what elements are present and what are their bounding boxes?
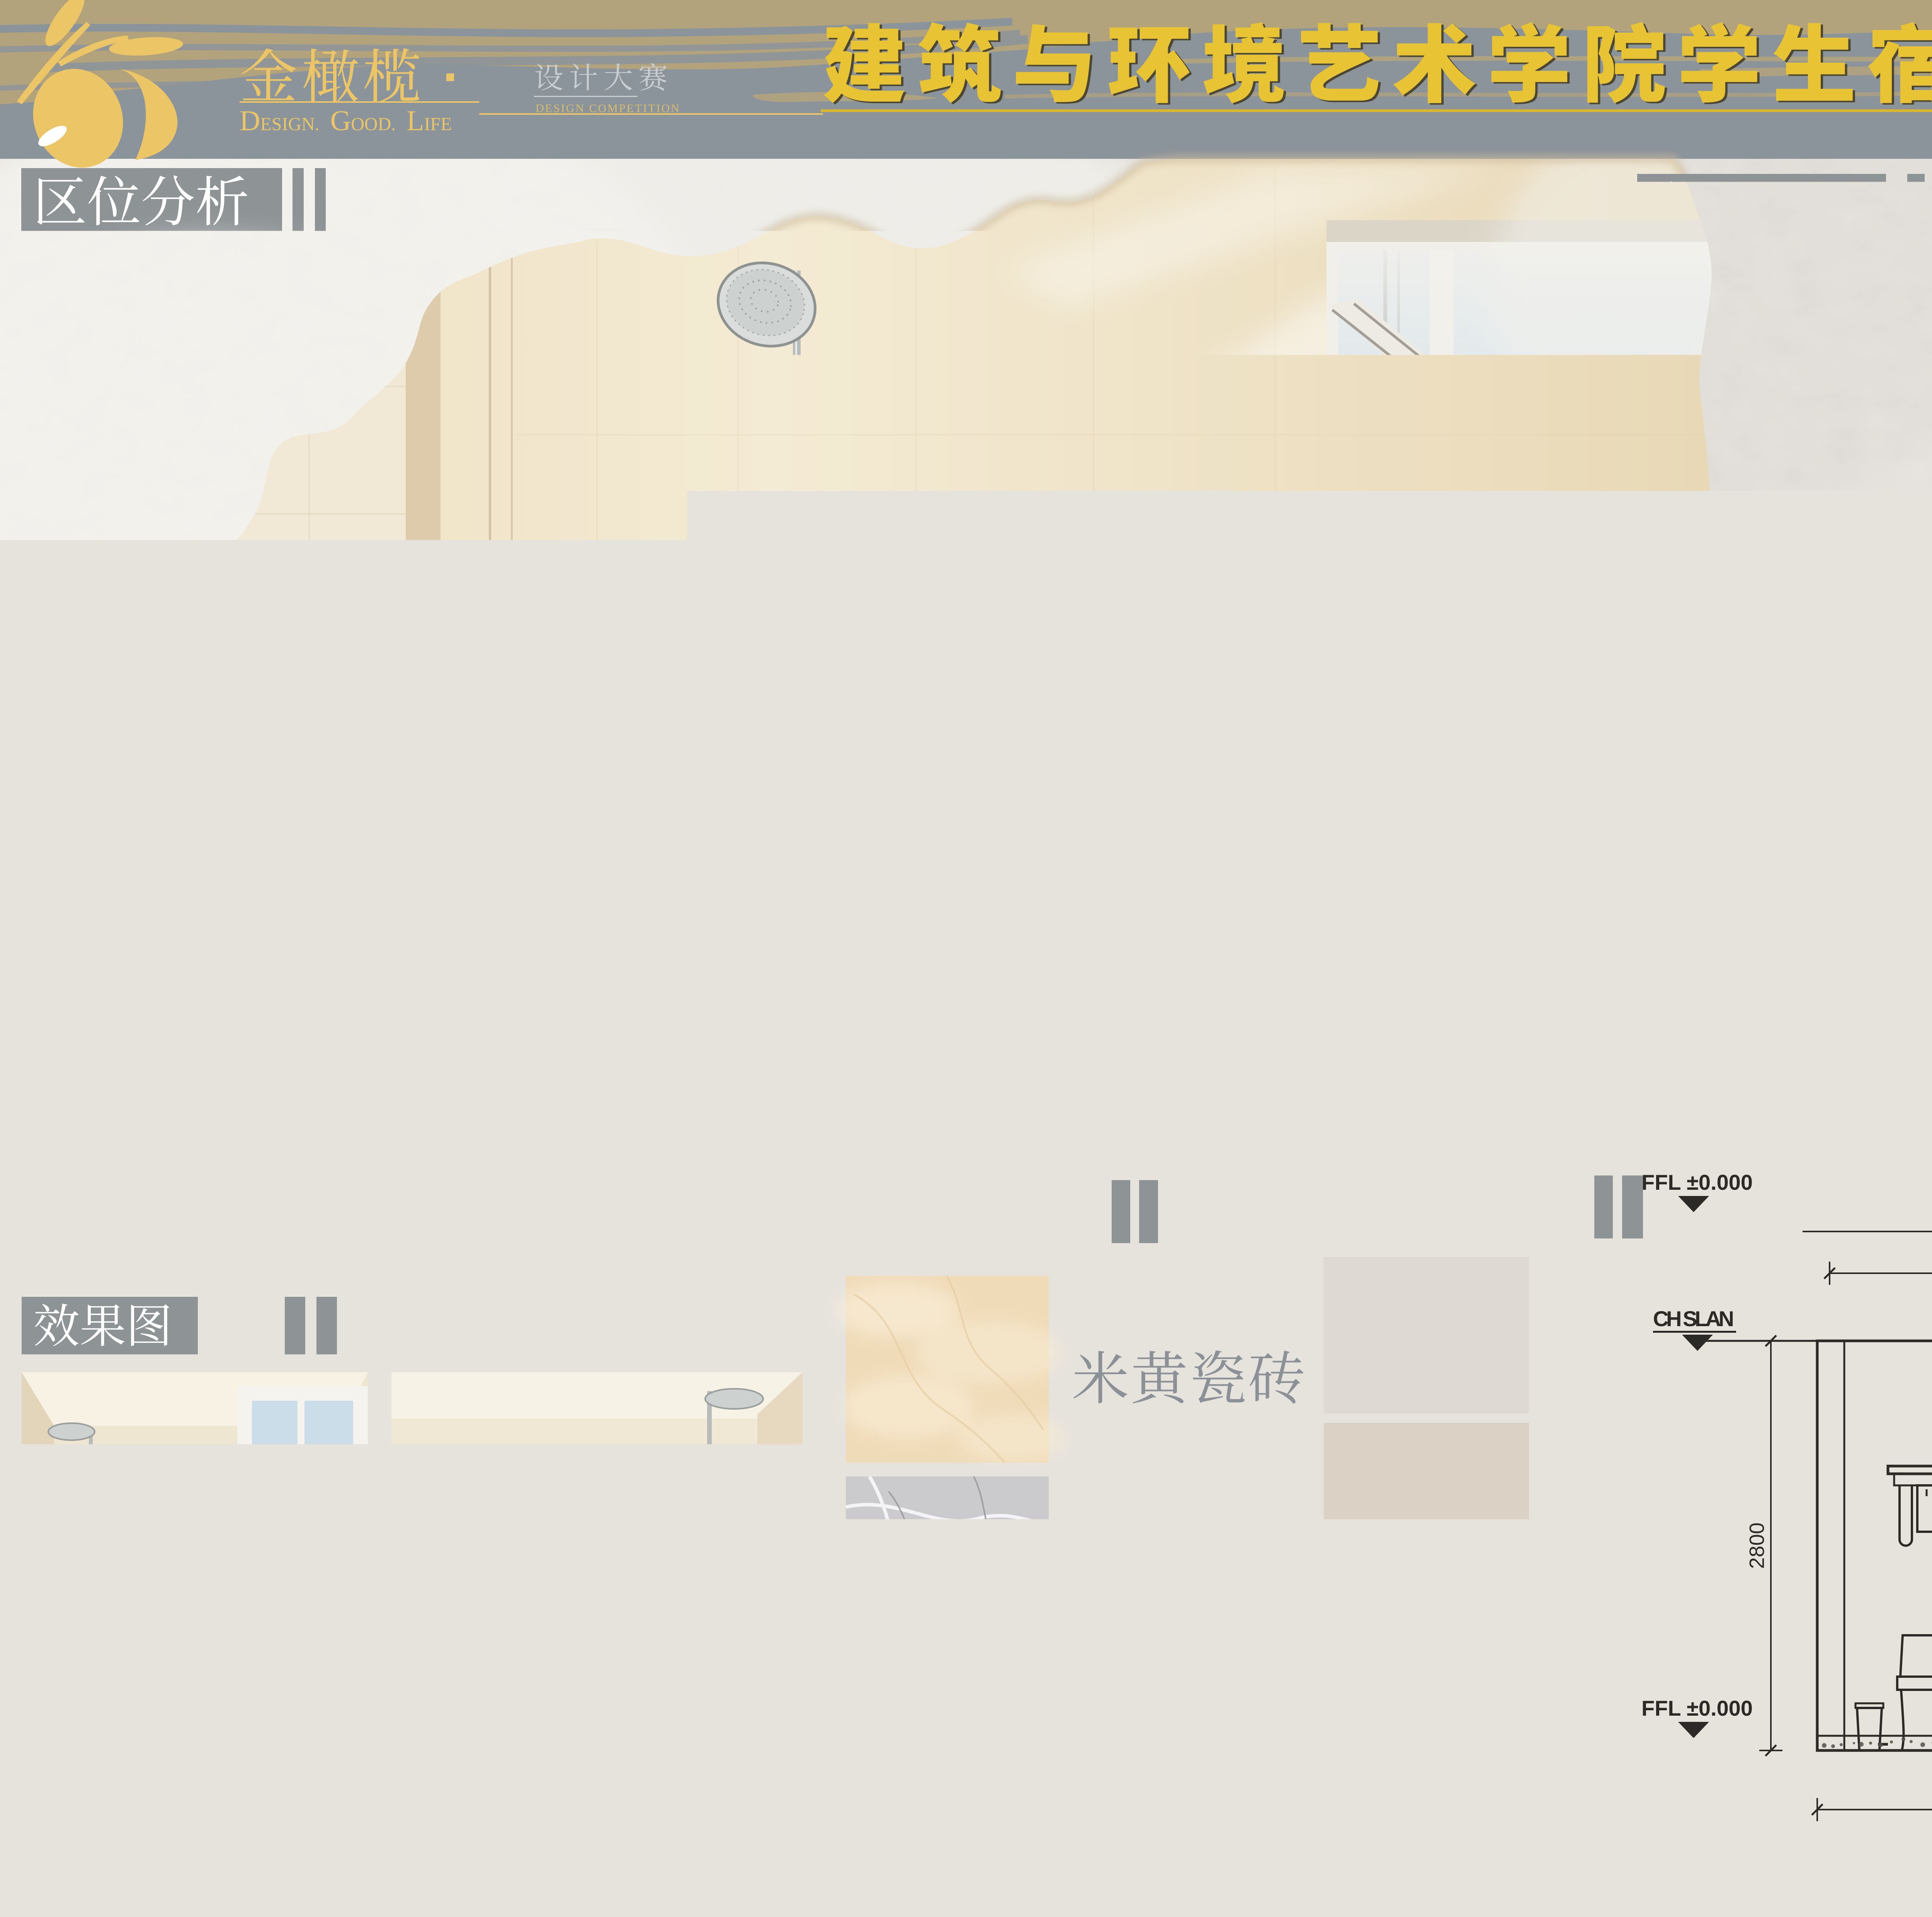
svg-text:1840: 1840 bbox=[1880, 247, 1932, 279]
svg-text:640: 640 bbox=[1639, 606, 1671, 653]
svg-text:2209: 2209 bbox=[1122, 1873, 1200, 1916]
svg-text:FFL ±0.000: FFL ±0.000 bbox=[1641, 1696, 1753, 1720]
svg-text:CH SLAN: CH SLAN bbox=[1647, 792, 1728, 816]
svg-text:2800: 2800 bbox=[1745, 1522, 1769, 1569]
svg-text:CH SLAN: CH SLAN bbox=[1653, 1306, 1734, 1331]
svg-text:2800: 2800 bbox=[1733, 1005, 1756, 1051]
svg-text:1460: 1460 bbox=[1639, 451, 1671, 515]
svg-text:DESIGN COMPETITION: DESIGN COMPETITION bbox=[536, 102, 680, 115]
svg-text:FFL ±0.000: FFL ±0.000 bbox=[1641, 1170, 1753, 1194]
